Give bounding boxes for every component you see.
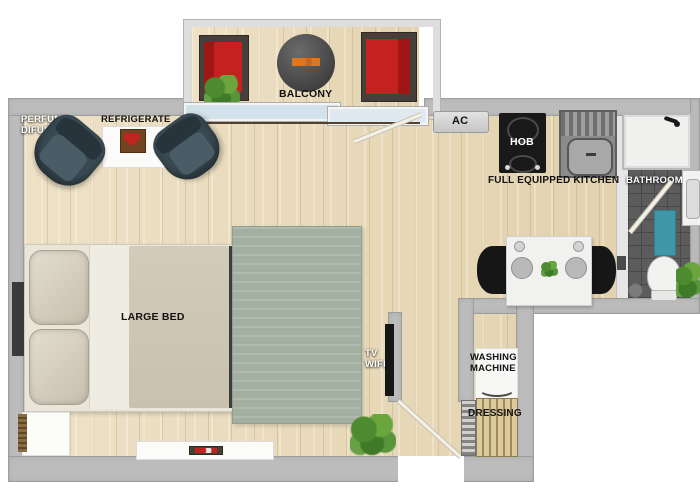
plate-left: [511, 257, 533, 279]
bath-mat: [654, 210, 676, 256]
plate-right: [565, 257, 587, 279]
dressing-wardrobe: [476, 398, 518, 457]
bed-sheet-fold: [89, 245, 132, 409]
bathroom-plant: [676, 262, 700, 302]
bedside-bench: [22, 412, 70, 456]
entrance-opening: [398, 456, 464, 484]
rug: [232, 226, 362, 424]
balcony-sliding-door: [184, 103, 426, 125]
hob-burner-bottom: [509, 155, 537, 173]
cup-right: [573, 241, 584, 252]
wall-corridor-right: [516, 298, 534, 468]
floor-plant: [350, 414, 396, 458]
bed-blanket: [129, 246, 229, 408]
washing-machine: [475, 348, 518, 400]
sink-basin: [567, 138, 613, 176]
floor-plan: BALCONY PERFUME DIFUSSER REFRIGERATE LAR…: [0, 0, 700, 500]
dining-table: [506, 236, 592, 306]
bathroom-sink: [682, 170, 700, 226]
hob-burner-top: [507, 117, 539, 143]
balcony-table-decor: [292, 58, 320, 66]
bedside-slats: [18, 414, 27, 452]
ac-label: AC: [452, 115, 468, 127]
sink-drainboard: [561, 112, 615, 136]
cup-left: [514, 241, 525, 252]
ac-unit: AC: [433, 111, 489, 133]
shower: [622, 113, 692, 170]
door-track: [194, 122, 420, 124]
wall-radiator-strip: [12, 282, 24, 356]
bed: LARGE BED: [24, 244, 238, 412]
wall-top-left: [8, 98, 190, 116]
kitchen-sink: [559, 110, 617, 178]
wall-corridor-left: [458, 298, 474, 402]
toilet-paper-holder: [617, 256, 626, 270]
table-plant: [541, 261, 558, 278]
toilet-base: [651, 290, 677, 301]
bed-pillow-top: [29, 250, 89, 325]
balcony-sofa-right: [361, 32, 417, 102]
console-shelf: [136, 441, 274, 460]
hall-radiator: [461, 400, 476, 456]
floor-drain: [628, 283, 643, 298]
tv: [385, 324, 394, 396]
outside-mask: [534, 314, 700, 500]
bed-pillow-bottom: [29, 329, 89, 405]
hob: HOB: [499, 113, 546, 173]
